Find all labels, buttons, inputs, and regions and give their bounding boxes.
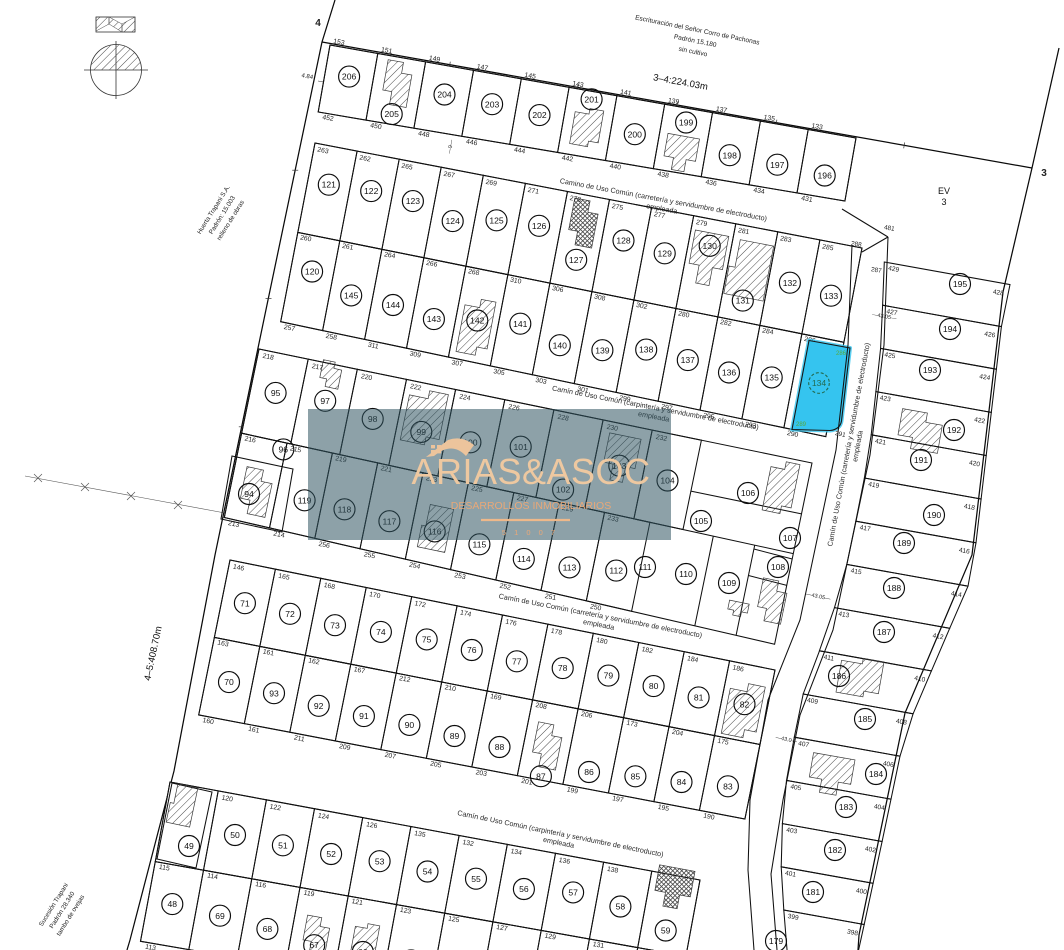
svg-text:69: 69 [215, 911, 225, 921]
svg-text:55: 55 [471, 874, 481, 884]
svg-text:131: 131 [736, 296, 751, 306]
svg-text:205: 205 [385, 109, 400, 119]
svg-text:132: 132 [783, 278, 798, 288]
svg-text:206: 206 [342, 72, 357, 82]
svg-text:90: 90 [405, 720, 415, 730]
svg-text:185: 185 [858, 714, 873, 724]
svg-text:197: 197 [770, 160, 785, 170]
svg-text:200: 200 [628, 129, 643, 139]
svg-text:89: 89 [450, 731, 460, 741]
svg-text:142: 142 [470, 316, 485, 326]
svg-text:127: 127 [569, 255, 584, 265]
svg-text:114: 114 [517, 554, 531, 564]
svg-text:136: 136 [722, 368, 737, 378]
svg-text:79: 79 [604, 671, 614, 681]
svg-text:57: 57 [568, 888, 578, 898]
svg-text:133: 133 [824, 291, 839, 301]
svg-text:143: 143 [427, 314, 442, 324]
svg-text:87: 87 [536, 771, 546, 781]
svg-text:DESARROLLOS INMOBILIARIOS: DESARROLLOS INMOBILIARIOS [451, 500, 611, 512]
svg-text:189: 189 [897, 538, 912, 548]
svg-text:EV: EV [938, 186, 950, 196]
svg-text:52: 52 [326, 849, 336, 859]
svg-text:181: 181 [806, 887, 821, 897]
svg-text:204: 204 [437, 90, 452, 100]
svg-text:88: 88 [495, 742, 505, 752]
svg-text:86: 86 [584, 767, 594, 777]
svg-text:190: 190 [927, 510, 942, 520]
svg-text:81: 81 [694, 693, 704, 703]
svg-text:113: 113 [563, 563, 577, 573]
svg-text:56: 56 [519, 884, 529, 894]
svg-text:122: 122 [364, 186, 379, 196]
svg-text:128: 128 [616, 236, 631, 246]
svg-text:3: 3 [941, 197, 946, 207]
svg-text:289: 289 [796, 422, 807, 428]
svg-text:54: 54 [423, 867, 433, 877]
svg-text:59: 59 [661, 926, 671, 936]
svg-text:187: 187 [877, 627, 892, 637]
svg-text:194: 194 [943, 324, 958, 334]
svg-text:97: 97 [320, 396, 330, 406]
svg-text:71: 71 [240, 598, 250, 608]
svg-text:92: 92 [314, 701, 324, 711]
svg-text:183: 183 [839, 802, 854, 812]
svg-text:125: 125 [489, 215, 504, 225]
svg-text:138: 138 [639, 345, 654, 355]
svg-text:202: 202 [532, 110, 547, 120]
svg-text:50: 50 [230, 830, 240, 840]
svg-text:196: 196 [818, 171, 833, 181]
svg-text:75: 75 [422, 635, 432, 645]
svg-text:123: 123 [406, 196, 421, 206]
svg-text:83: 83 [723, 781, 733, 791]
svg-text:85: 85 [631, 771, 641, 781]
svg-text:182: 182 [828, 845, 843, 855]
svg-text:130: 130 [703, 241, 718, 251]
svg-text:140: 140 [553, 340, 568, 350]
svg-text:145: 145 [344, 291, 359, 301]
svg-text:80: 80 [649, 681, 659, 691]
svg-text:82: 82 [740, 699, 750, 709]
svg-text:78: 78 [558, 663, 568, 673]
svg-text:141: 141 [513, 319, 528, 329]
svg-text:137: 137 [681, 355, 696, 365]
svg-text:113: 113 [145, 944, 157, 950]
svg-text:135: 135 [765, 373, 780, 383]
svg-text:286: 286 [836, 351, 847, 357]
svg-text:3: 3 [1041, 168, 1047, 179]
svg-text:76: 76 [467, 645, 477, 655]
svg-text:67: 67 [309, 940, 319, 950]
svg-text:72: 72 [285, 609, 295, 619]
svg-text:106: 106 [741, 488, 756, 498]
svg-text:112: 112 [609, 566, 623, 576]
svg-text:68: 68 [263, 924, 273, 934]
svg-text:191: 191 [914, 455, 929, 465]
svg-text:115: 115 [473, 539, 487, 549]
svg-text:53: 53 [375, 856, 385, 866]
svg-text:108: 108 [771, 562, 786, 572]
svg-text:124: 124 [446, 216, 461, 226]
svg-text:5 1 0 0 7: 5 1 0 0 7 [502, 528, 558, 537]
svg-text:48: 48 [168, 899, 178, 909]
svg-text:93: 93 [269, 688, 279, 698]
svg-text:94: 94 [244, 489, 254, 499]
svg-text:129: 129 [658, 248, 673, 258]
svg-text:51: 51 [278, 840, 288, 850]
svg-text:77: 77 [512, 656, 522, 666]
svg-text:74: 74 [376, 627, 386, 637]
svg-text:126: 126 [532, 221, 547, 231]
svg-text:110: 110 [679, 569, 693, 579]
svg-text:111: 111 [638, 562, 651, 572]
svg-text:203: 203 [485, 99, 500, 109]
svg-text:95: 95 [271, 388, 281, 398]
svg-text:188: 188 [887, 583, 902, 593]
svg-text:109: 109 [722, 578, 737, 588]
svg-text:107: 107 [783, 533, 798, 543]
svg-text:134: 134 [812, 378, 827, 388]
svg-text:184: 184 [869, 769, 884, 779]
svg-text:73: 73 [330, 620, 340, 630]
svg-text:70: 70 [224, 677, 234, 687]
svg-text:49: 49 [184, 841, 194, 851]
svg-text:105: 105 [694, 516, 709, 526]
svg-text:193: 193 [923, 365, 938, 375]
svg-text:199: 199 [679, 118, 694, 128]
svg-text:4: 4 [315, 18, 321, 29]
svg-text:91: 91 [359, 711, 369, 721]
svg-text:144: 144 [386, 300, 401, 310]
svg-text:ARIAS&ASOC: ARIAS&ASOC [411, 451, 650, 492]
svg-text:195: 195 [953, 279, 968, 289]
svg-text:121: 121 [322, 180, 337, 190]
svg-text:84: 84 [677, 777, 687, 787]
svg-text:186: 186 [832, 671, 847, 681]
svg-text:201: 201 [584, 94, 599, 104]
svg-text:198: 198 [723, 150, 738, 160]
svg-text:192: 192 [947, 425, 962, 435]
svg-text:120: 120 [305, 267, 320, 277]
svg-text:58: 58 [616, 902, 626, 912]
svg-text:139: 139 [595, 345, 610, 355]
